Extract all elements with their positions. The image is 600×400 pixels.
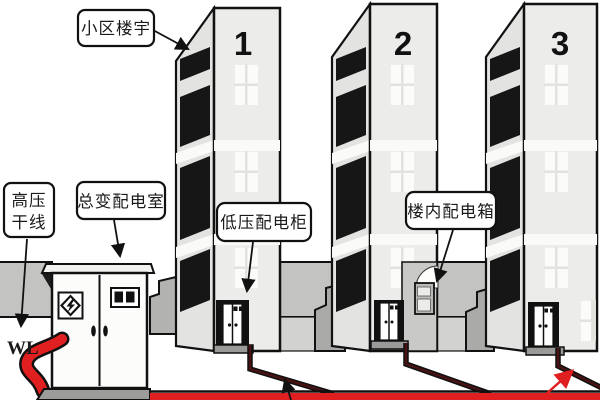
- cabinet-step: [371, 341, 408, 349]
- label-indoor-distribution-box: 楼内配电箱: [407, 202, 495, 221]
- cabinet-step: [214, 345, 253, 353]
- building-1-side-window: [180, 156, 210, 240]
- callout-main-transformer-room: 总变配电室: [77, 182, 165, 256]
- transformer-roof: [42, 264, 154, 273]
- main-lv-feeder-line: [150, 392, 600, 397]
- arrow-community-buildings: [153, 30, 188, 49]
- label-lv-distribution-cabinet: 低压配电柜: [220, 213, 308, 232]
- label-hv-trunk-line-1: 高压: [12, 191, 47, 210]
- building-1-lv-cabinet: [214, 300, 253, 353]
- building-2-front-floor-band: [370, 234, 437, 245]
- arrow-main-transformer-room: [114, 220, 120, 256]
- label-main-transformer-room: 总变配电室: [77, 192, 165, 211]
- callout-community-buildings: 小区楼宇: [78, 10, 188, 49]
- wl-cable-label: WL: [7, 338, 39, 359]
- building-1-windows: [234, 64, 258, 288]
- building-1-number: 1: [234, 25, 252, 62]
- building-2-side-window: [336, 156, 366, 240]
- label-community-buildings: 小区楼宇: [81, 19, 151, 38]
- building-3: 3: [486, 4, 597, 351]
- stepped-wall-near-transformer: [150, 277, 176, 334]
- building-3-front-floor-band: [524, 234, 597, 245]
- building-1: 1: [176, 8, 280, 351]
- building-2-windows: [390, 64, 414, 288]
- building-3-number: 3: [551, 25, 569, 62]
- building-2: 2: [332, 4, 438, 351]
- building-1-feeder-cable: [250, 345, 334, 394]
- diagram-canvas: 1 2: [0, 0, 600, 400]
- door-handle: [103, 326, 108, 337]
- power-distribution-diagram: 1 2: [0, 0, 600, 400]
- building-2-number: 2: [394, 25, 412, 62]
- door-handle: [91, 326, 96, 337]
- building-3-front-floor-band: [524, 140, 597, 151]
- transformer-meter-panel: [111, 288, 139, 307]
- transformer-cabinet: [42, 264, 154, 388]
- building-3-lv-cabinet: [526, 302, 564, 355]
- indoor-distribution-box: [415, 283, 434, 314]
- label-hv-trunk-line-2: 干线: [12, 213, 47, 232]
- transformer-base-plinth: [37, 389, 150, 400]
- building-2-lv-cabinet: [371, 300, 408, 349]
- building-2-front-floor-band: [370, 140, 437, 151]
- high-voltage-warning-sign: [59, 293, 83, 319]
- building-1-front-floor-band: [214, 140, 280, 151]
